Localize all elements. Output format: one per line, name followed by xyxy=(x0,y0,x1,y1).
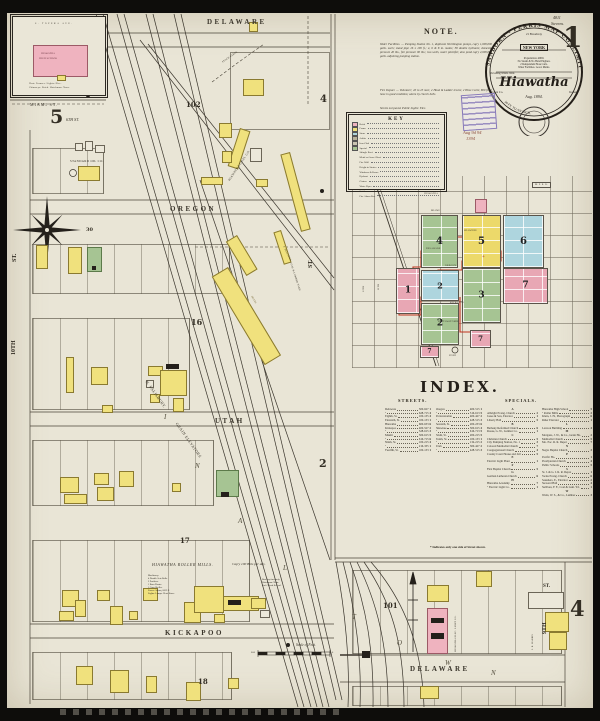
idxmap-pond-label: POND xyxy=(449,355,456,357)
mills-notes-list: Run day time only.Watchman: None.Fuel: W… xyxy=(262,578,310,587)
key-row-leader xyxy=(370,176,439,177)
received-stamp xyxy=(461,93,497,131)
building-annex xyxy=(431,618,444,623)
idxmap-oregon: OREGON xyxy=(445,265,456,267)
special-name: Watts, W. S., & Co., Lumber xyxy=(542,494,575,498)
building xyxy=(119,471,134,487)
key-row-leader xyxy=(371,143,439,144)
special-sheet: 5 xyxy=(537,419,538,423)
special-name: E xyxy=(512,456,514,460)
index-streets-col1: Delaware 500-627 1 " 628-715 4 Eighth, S… xyxy=(385,408,431,453)
leader-dots xyxy=(511,469,534,470)
building xyxy=(201,177,223,185)
street-tenth-left: 10TH xyxy=(11,340,17,355)
building xyxy=(102,405,113,413)
handwritten-date-2: 1394 xyxy=(466,137,475,142)
inset-high-school: S. TOPEKA AVE. HIAWATHA HIGH SCHOOL Heat… xyxy=(12,16,106,96)
marker-dot xyxy=(320,189,324,193)
street-oregon: OREGON xyxy=(170,206,216,213)
building xyxy=(60,477,79,493)
scan-footer-marks xyxy=(60,709,340,715)
leader-dots xyxy=(521,443,535,444)
marker-dot xyxy=(286,643,290,647)
index-specials-col1: A Albright Evang. Church 2 Jones & Son, … xyxy=(487,408,538,490)
leader-dots xyxy=(576,495,588,496)
street-delaware-bottom: DELAWARE xyxy=(410,666,470,673)
special-sheet: 3 xyxy=(591,449,592,453)
street-name: Ninth, St. xyxy=(385,441,396,445)
idxmap-eleventh: 11TH xyxy=(378,284,380,290)
special-sheet: 1 xyxy=(591,419,592,423)
key-row-label: Metal or Gravel Roof xyxy=(360,156,382,160)
building xyxy=(420,686,439,699)
index-map-sheet-6: 6 xyxy=(503,215,544,268)
north-arrow-bottom xyxy=(408,572,418,652)
building-standard-oil xyxy=(78,166,100,181)
key-row-leader xyxy=(368,138,439,139)
special-name: F xyxy=(512,464,514,468)
building xyxy=(260,610,270,618)
leader-dots xyxy=(453,417,469,418)
building-annex xyxy=(431,633,444,639)
building xyxy=(59,611,74,621)
track-letter: T xyxy=(352,614,356,621)
street-name: Shawnee xyxy=(436,427,446,431)
key-row-label: Fire Wall xyxy=(360,161,369,165)
building xyxy=(75,143,83,151)
track-letter: I xyxy=(164,414,166,421)
key-swatch xyxy=(352,146,358,151)
key-row-leader xyxy=(375,152,439,153)
index-title: INDEX. xyxy=(420,380,500,395)
building xyxy=(250,148,262,162)
special-name: Lawson Building xyxy=(542,427,562,431)
index-map-sheet-7: 7 xyxy=(503,268,548,304)
leader-dots xyxy=(398,417,418,418)
idxmap-cross-2: + xyxy=(437,283,440,288)
leader-dots xyxy=(582,436,589,437)
building xyxy=(110,670,129,693)
track-letter: L xyxy=(283,565,287,572)
sixth-street-label: 6TH ST. xyxy=(66,118,79,122)
idxmap-pottawatomie: POTTAWATOMIE xyxy=(438,321,459,323)
building xyxy=(75,600,86,617)
key-rows: Brick Frame Stone Adobe Iron Clad S xyxy=(352,122,441,199)
leader-dots xyxy=(511,488,535,489)
leader-dots xyxy=(446,410,469,411)
special-name: L xyxy=(566,423,568,427)
track-letter: N xyxy=(491,670,496,677)
building xyxy=(95,145,105,153)
index-map-sheet-2-blue: 2 xyxy=(421,270,459,301)
leader-dots xyxy=(514,417,535,418)
index-specials-col2: Hiawatha High School 5 " Roller Mills 2 … xyxy=(542,408,592,497)
key-row-label: Adobe xyxy=(360,137,367,141)
idxmap-shawnee: SHAWNEE xyxy=(464,230,477,232)
special-name: Liberty Hall xyxy=(487,419,501,423)
building xyxy=(66,357,74,393)
building xyxy=(129,611,138,620)
building xyxy=(243,79,264,96)
index-map-sheet-2-green: 2 xyxy=(421,303,459,345)
leader-dots xyxy=(400,451,418,452)
key-row-label: Fire Alarm Box xyxy=(360,195,376,199)
leader-dots xyxy=(511,462,535,463)
plate-ref: 4811 xyxy=(553,16,561,20)
leader-dots xyxy=(438,443,469,444)
mills-note-line: Fuel: Wood & Coal. xyxy=(262,584,310,587)
building xyxy=(146,676,157,693)
special-name: Rider Elevator xyxy=(542,419,559,423)
special-sheet: 5 xyxy=(591,464,592,468)
key-box: KEY Brick Frame Stone Adobe Iron Clad xyxy=(348,114,445,190)
index-map-sheet-1: 1 xyxy=(396,268,420,314)
block-number-17: 17 xyxy=(180,537,190,544)
street-ninth-bottom: 9TH xyxy=(542,622,548,634)
special-sheet: 7 xyxy=(591,441,592,445)
sheet-group-number: 7 xyxy=(471,334,490,343)
leader-dots xyxy=(572,473,588,474)
street-kickapoo: KICKAPOO xyxy=(165,630,224,637)
index-streets-header: STREETS. xyxy=(398,399,427,404)
street-name: Kickapoo xyxy=(385,427,396,431)
leader-dots xyxy=(522,454,535,455)
inset-sheet-number: 5 xyxy=(50,108,63,127)
circle-date: Aug. 1894. xyxy=(490,94,578,99)
scale-right-value: 0 xyxy=(332,652,333,654)
index-map-small-block xyxy=(475,199,487,213)
key-row-leader xyxy=(383,157,439,158)
leader-dots xyxy=(519,428,534,429)
leader-dots xyxy=(438,451,469,452)
building xyxy=(476,571,492,587)
sheet-group-number: 3 xyxy=(463,290,500,300)
harris-label: J. R. HARRIS xyxy=(532,634,534,650)
special-name: Public Schools xyxy=(542,464,559,468)
sheet-group-number: 5 xyxy=(463,235,500,246)
building-electric-light xyxy=(427,608,448,654)
building xyxy=(222,151,232,163)
block-number-16: 16 xyxy=(191,318,202,326)
street-name: " xyxy=(436,449,437,453)
special-name: Negro Baptist Church xyxy=(542,449,567,453)
leader-dots xyxy=(569,480,589,481)
leader-dots xyxy=(560,421,589,422)
block-number-102: 102 xyxy=(186,101,201,108)
leader-dots xyxy=(401,421,418,422)
handwritten-date-1: Aug 9d 94 xyxy=(463,131,482,136)
leader-dots xyxy=(443,447,469,448)
building xyxy=(91,367,108,385)
index-special-row: Watts, W. S., & Co., Lumber 3 xyxy=(542,494,592,498)
school-label-1: HIAWATHA xyxy=(41,53,55,55)
street-st-mid: ST. xyxy=(308,260,314,268)
key-row-label: Windows & Doors xyxy=(360,171,379,175)
leader-dots xyxy=(394,436,418,437)
idxmap-twelfth: 12TH xyxy=(363,286,365,292)
mills-machinery-line: Lights: Lamps. Heat: Stove. xyxy=(148,592,196,595)
leader-dots xyxy=(451,425,469,426)
sheet-number: 1 xyxy=(563,24,582,52)
sanborn-map-sheet: S. TOPEKA AVE. HIAWATHA HIGH SCHOOL Heat… xyxy=(0,0,600,721)
street-name: Oregon xyxy=(436,408,445,412)
street-sheet: 3 xyxy=(481,449,482,453)
circle-water: Water Facilities. Good. Mains. xyxy=(490,66,578,69)
circle-town-name: Hiawatha xyxy=(490,75,578,90)
special-name: C xyxy=(511,434,513,438)
leader-dots xyxy=(571,417,589,418)
building-roller-mills xyxy=(194,586,224,613)
building xyxy=(36,245,48,269)
scale-left-value: 600 xyxy=(251,652,255,654)
key-row-leader xyxy=(378,167,439,168)
margin-number-4-bottom: 4 xyxy=(570,598,585,619)
inset-avenue-label: S. TOPEKA AVE. xyxy=(35,23,73,25)
key-row-label: Iron Clad xyxy=(360,142,370,146)
key-row-label: Stone xyxy=(360,132,366,136)
building xyxy=(64,494,87,504)
mills-machinery-list: Machinery:4 Double Sets Rolls.2 Purifier… xyxy=(148,574,196,596)
building xyxy=(228,678,239,689)
special-name: Sullivan, F. F., Coal & Lum. Yd. xyxy=(542,486,580,490)
special-sheet: 1 xyxy=(537,486,538,490)
sheet-group-number: 7 xyxy=(421,348,438,355)
street-name: Delaware xyxy=(385,408,396,412)
track-letter: A xyxy=(238,518,242,525)
building-annex xyxy=(228,600,241,605)
special-sheet: 5 xyxy=(537,468,538,472)
building xyxy=(85,141,93,151)
street-utah: UTAH xyxy=(215,418,245,425)
key-row-label: Cistern xyxy=(360,180,367,184)
sheet-group-number: 2 xyxy=(422,280,458,290)
index-map-sheet-5: 5 xyxy=(462,215,501,268)
key-row-leader xyxy=(367,123,439,124)
special-sheet: 5 xyxy=(537,453,538,457)
index-footnote: * Indicates only one side of Street show… xyxy=(430,546,486,549)
leader-dots xyxy=(516,413,535,414)
building-annex xyxy=(92,266,96,270)
idxmap-hiawatha: HIAWATHA xyxy=(424,193,438,195)
index-map-sheet-7b: 7 xyxy=(470,330,491,348)
special-name: Mo. Pac. R. R. Depot xyxy=(542,441,567,445)
special-sheet: 6 xyxy=(537,475,538,479)
building xyxy=(94,473,109,485)
street-range: 100-133 xyxy=(419,449,429,453)
building xyxy=(219,123,232,138)
index-specials-header: SPECIALS. xyxy=(505,399,537,404)
key-row-label: Brick xyxy=(360,123,366,127)
special-sheet: 1 xyxy=(591,486,592,490)
key-row-leader xyxy=(367,133,439,134)
index-streets-col2: Oregon 400-515 1 " 516-613 5 Pottawatomi… xyxy=(436,408,482,453)
building xyxy=(545,612,569,632)
special-sheet: 4 xyxy=(591,427,592,431)
street-range: 428-515 xyxy=(470,449,480,453)
track-letter: W xyxy=(445,660,451,667)
leader-dots xyxy=(560,466,588,467)
building xyxy=(76,666,93,685)
idxmap-kickapoo: KICKAPOO xyxy=(450,302,464,304)
index-street-row: " 428-515 3 xyxy=(436,449,482,453)
roller-mills-capacity: Cap'y 100 Bbls per day. xyxy=(232,563,266,567)
leader-dots xyxy=(397,425,418,426)
leader-dots xyxy=(568,477,589,478)
building xyxy=(549,632,567,650)
leader-dots xyxy=(448,439,469,440)
leader-dots xyxy=(581,488,589,489)
street-delaware-top: DELAWARE xyxy=(207,19,267,26)
building-grain-elevator xyxy=(160,370,187,396)
standard-oil-label: STANDARD OIL CO. xyxy=(70,160,104,163)
key-row-leader xyxy=(373,186,439,187)
building-high-school xyxy=(33,45,88,77)
building xyxy=(256,179,268,187)
track-bumper xyxy=(362,651,370,658)
key-row-label: Water Pipes xyxy=(360,185,372,189)
index-map-sheet-7c: 7 xyxy=(420,346,439,358)
building xyxy=(251,598,266,609)
building xyxy=(172,483,181,492)
special-name: " Electric Light Co. xyxy=(487,486,510,490)
leader-dots xyxy=(448,436,469,437)
building-note-box xyxy=(528,592,564,609)
special-name: Electric Light Plant xyxy=(487,460,510,464)
building xyxy=(214,614,225,623)
leader-dots xyxy=(519,447,535,448)
note-title: NOTE. xyxy=(424,28,459,36)
leader-dots xyxy=(511,484,535,485)
key-row-leader xyxy=(380,171,439,172)
block-number-101: 101 xyxy=(383,602,398,609)
scale-label: Scale of Feet. xyxy=(296,644,316,648)
leader-dots xyxy=(568,451,588,452)
idxmap-railroad-box: M. P. R. R. xyxy=(532,182,551,188)
index-special-row: " Electric Light Co. 1 xyxy=(487,486,538,490)
key-row-leader xyxy=(368,128,439,129)
special-sheet: 1 xyxy=(537,460,538,464)
building xyxy=(97,487,114,501)
key-row-leader xyxy=(369,181,439,182)
building xyxy=(97,590,110,601)
sheet-group-number: 7 xyxy=(504,281,547,291)
key-row-leader xyxy=(371,162,439,163)
building xyxy=(173,398,184,412)
school-detail-2: Chimneys: Brick. Watchman: None. xyxy=(29,87,70,89)
leader-dots xyxy=(519,432,535,433)
street-name: Twelfth, St. xyxy=(385,449,399,453)
special-sheet: 3 xyxy=(591,494,592,498)
key-row-label: Stable xyxy=(360,190,366,194)
special-name: County Court House and Jail xyxy=(487,453,521,457)
idxmap-delaware: DELAWARE xyxy=(426,248,441,250)
scale-bar xyxy=(258,650,330,657)
track-letter: N xyxy=(195,463,200,470)
leader-dots xyxy=(447,428,468,429)
idxmap-miami: MIAMI xyxy=(431,210,440,212)
street-st-left: ST. xyxy=(12,254,18,262)
leader-dots xyxy=(502,421,534,422)
leader-dots xyxy=(567,462,589,463)
special-name: H xyxy=(511,479,513,483)
building-annex xyxy=(166,364,179,369)
pond-symbol xyxy=(452,347,458,353)
key-row-leader xyxy=(369,147,439,148)
building xyxy=(68,247,82,274)
index-map-sheet-4: 4 xyxy=(421,215,458,268)
street-sheet: 1 xyxy=(430,449,431,453)
key-row-label: Shingle Roof xyxy=(360,151,373,155)
block-number-30: 30 xyxy=(86,228,93,233)
leader-dots xyxy=(397,410,418,411)
margin-number-2: 2 xyxy=(319,458,327,469)
leader-dots xyxy=(397,428,418,429)
leader-dots xyxy=(397,443,418,444)
special-sheet: 1 xyxy=(537,430,538,434)
index-map-sheet-3: 3 xyxy=(462,268,501,323)
electric-light-co-label: HIAWATHA ELEC. LIGHT CO. xyxy=(455,616,457,653)
idxmap-cross-1: + xyxy=(482,255,485,260)
key-row-label: Frame xyxy=(360,127,366,131)
sheet-group-number: 4 xyxy=(422,235,457,246)
building-annex xyxy=(57,75,66,81)
key-row-label: Special xyxy=(360,147,367,151)
track-letter: O xyxy=(397,640,402,647)
circle-state: Kansas xyxy=(569,90,578,94)
special-name: P xyxy=(566,453,568,457)
index-street-row: Twelfth, St. 100-133 1 xyxy=(385,449,431,453)
sheet-group-number: 6 xyxy=(504,235,543,246)
special-name: First Baptist Church xyxy=(487,468,510,472)
key-row-label: Height in Stories xyxy=(360,166,377,170)
building xyxy=(427,585,449,602)
building xyxy=(110,606,123,625)
school-label-2: HIGH SCHOOL xyxy=(39,58,57,60)
leader-dots xyxy=(568,443,589,444)
sheet-group-number: 1 xyxy=(397,286,419,296)
street-st-bottom: ST. xyxy=(543,584,550,589)
street-name: Pottawatomie xyxy=(436,415,452,419)
leader-dots xyxy=(564,439,589,440)
block-number-18: 18 xyxy=(198,678,208,685)
leader-dots xyxy=(518,477,535,478)
street-name: Tenth, St. xyxy=(436,438,447,442)
key-row-label: Hydrant xyxy=(360,175,368,179)
building-annex xyxy=(221,492,229,497)
circle-city: NEW YORK xyxy=(520,44,548,51)
roller-mills-label: HIAWATHA ROLLER MILLS. xyxy=(152,563,213,567)
key-row-leader xyxy=(377,195,439,196)
oil-tank-symbol xyxy=(70,170,77,177)
leader-dots xyxy=(569,410,588,411)
margin-number-4: 4 xyxy=(320,95,327,105)
